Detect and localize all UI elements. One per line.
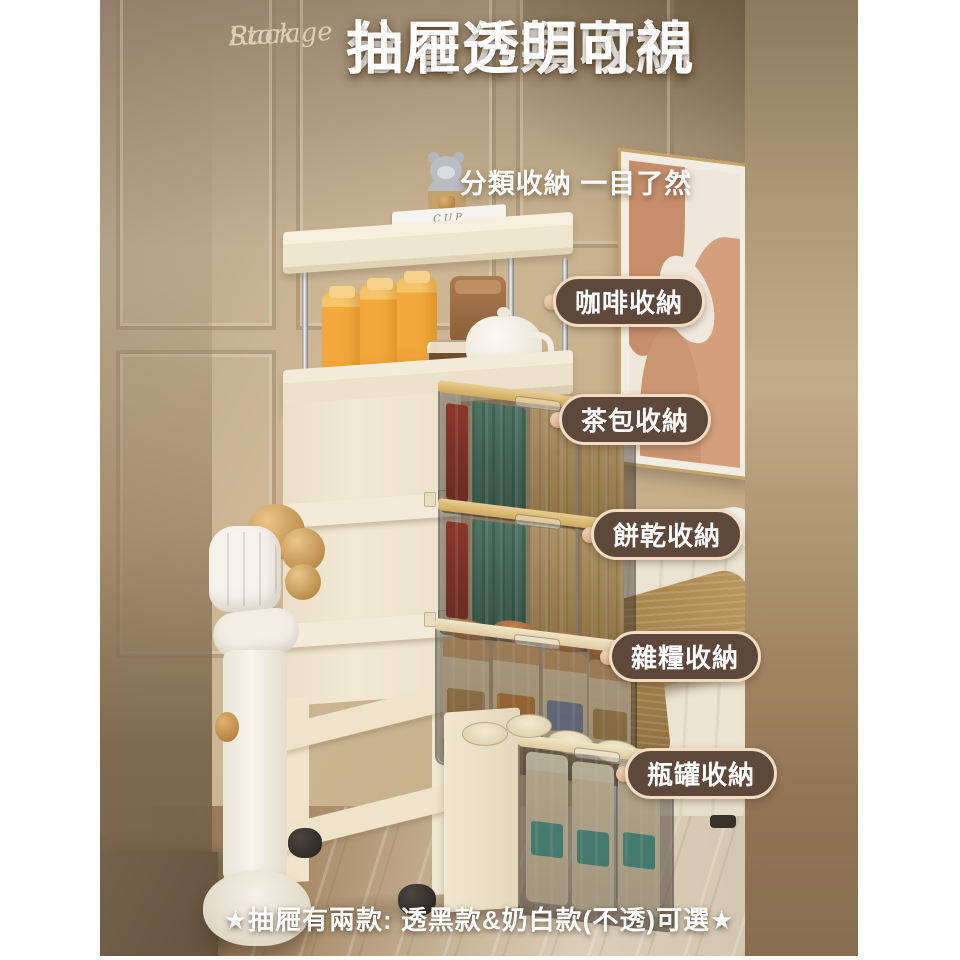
rack-top-shelf [283,212,573,274]
promo-image-canvas: CUP BRINGING THE HOUSE HOME [0,0,960,960]
can-top [462,722,508,746]
label-text: 茶包收納 [559,394,711,445]
sculpture-hand [209,526,281,612]
label-cookie-storage: 餅乾收納 [582,509,743,560]
label-tea-storage: 茶包收納 [550,394,711,445]
label-grain-storage: 雜糧收納 [600,631,761,682]
living-room-scene: CUP BRINGING THE HOUSE HOME [100,0,858,956]
foreground-blur-right [745,0,858,956]
sculpture-body [223,650,287,886]
sculpture-gold-accent [215,712,239,742]
gold-flower-ornament [285,564,321,600]
label-text: 餅乾收納 [591,509,743,560]
label-bottle-storage: 瓶罐收納 [616,748,777,799]
footer-note: ★抽屜有兩款: 透黑款&奶白款(不透)可選★ [100,900,858,937]
kaws-figure-sculpture [195,500,345,956]
subtitle: 分類收納 一目了然 [420,162,732,201]
label-text: 咖啡收納 [553,276,705,327]
watermark-line2: Rack [228,20,295,52]
label-text: 雜糧收納 [609,631,761,682]
can-top [506,714,552,738]
sofa-foot [710,815,736,828]
chrome-pole [302,262,308,370]
label-coffee-storage: 咖啡收納 [544,276,705,327]
headline-line2: 抽屜透明可視 [346,16,694,82]
rack-clip-tab [424,492,436,507]
label-text: 瓶罐收納 [625,748,777,799]
